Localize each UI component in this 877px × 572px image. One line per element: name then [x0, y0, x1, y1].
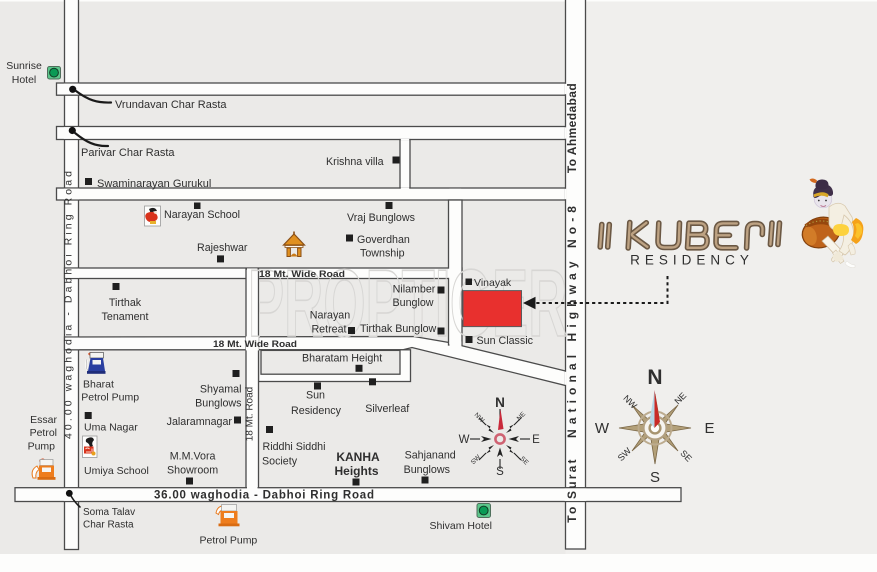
- svg-text:Showroom: Showroom: [167, 465, 218, 477]
- svg-text:Petrol Pump: Petrol Pump: [81, 392, 139, 404]
- svg-text:Shivam Hotel: Shivam Hotel: [430, 520, 492, 532]
- svg-text:Jalaramnagar: Jalaramnagar: [167, 416, 233, 428]
- svg-text:Bharatam Height: Bharatam Height: [302, 353, 382, 365]
- svg-text:36.00 waghodia - Dabhoi Ri: 36.00 waghodia - Dabhoi Ring Road: [154, 490, 374, 502]
- svg-text:18 Mt. Wide Road: 18 Mt. Wide Road: [213, 339, 297, 350]
- svg-text:Char Rasta: Char Rasta: [83, 520, 134, 531]
- svg-text:Pump: Pump: [28, 441, 56, 453]
- svg-text:Narayan: Narayan: [310, 310, 350, 322]
- svg-text:Tirthak: Tirthak: [109, 297, 142, 309]
- svg-text:N: N: [495, 395, 505, 410]
- svg-text:Sunrise: Sunrise: [6, 60, 42, 72]
- svg-text:Residency: Residency: [291, 405, 342, 417]
- svg-text:KANHA: KANHA: [336, 450, 380, 464]
- svg-text:Silverleaf: Silverleaf: [365, 403, 409, 415]
- svg-text:W: W: [595, 420, 610, 437]
- svg-text:Parivar Char Rasta: Parivar Char Rasta: [81, 147, 175, 159]
- svg-text:Vinayak: Vinayak: [474, 277, 512, 289]
- svg-text:Umiya School: Umiya School: [84, 465, 149, 477]
- svg-text:Soma Talav: Soma Talav: [83, 507, 135, 518]
- svg-text:Sun Classic: Sun Classic: [477, 335, 534, 347]
- svg-text:Retreat: Retreat: [311, 324, 346, 336]
- svg-text:E: E: [704, 420, 714, 437]
- svg-text:Vraj Bunglows: Vraj Bunglows: [347, 212, 415, 224]
- svg-text:W: W: [459, 434, 470, 446]
- svg-text:Shyamal: Shyamal: [200, 384, 242, 396]
- svg-text:To Surat: To Surat: [565, 457, 579, 522]
- svg-text:Bunglows: Bunglows: [195, 398, 241, 410]
- svg-text:Swaminarayan Gurukul: Swaminarayan Gurukul: [97, 178, 211, 190]
- svg-text:Uma Nagar: Uma Nagar: [84, 422, 138, 434]
- svg-text:18 Mt. Wide Road: 18 Mt. Wide Road: [259, 269, 345, 280]
- svg-text:RESIDENCY: RESIDENCY: [630, 253, 754, 268]
- svg-text:S: S: [496, 466, 504, 478]
- svg-text:E: E: [532, 434, 540, 446]
- svg-text:Nilamber: Nilamber: [393, 284, 436, 296]
- svg-text:S: S: [650, 469, 660, 486]
- svg-text:N: N: [647, 366, 662, 389]
- svg-text:Petrol: Petrol: [30, 427, 57, 439]
- svg-text:Essar: Essar: [30, 414, 57, 426]
- svg-text:Narayan School: Narayan School: [164, 209, 240, 221]
- svg-text:Riddhi Siddhi: Riddhi Siddhi: [263, 441, 326, 453]
- svg-text:Bunglow: Bunglow: [393, 297, 434, 309]
- svg-text:Petrol Pump: Petrol Pump: [200, 535, 258, 547]
- svg-text:To Ahmedabad: To Ahmedabad: [565, 83, 579, 173]
- svg-text:Goverdhan: Goverdhan: [357, 234, 410, 246]
- svg-text:Hotel: Hotel: [12, 74, 37, 86]
- svg-text:Bharat: Bharat: [83, 379, 114, 391]
- svg-text:Sun: Sun: [306, 390, 325, 402]
- svg-text:Heights: Heights: [334, 464, 378, 478]
- svg-text:M.M.Vora: M.M.Vora: [170, 451, 216, 463]
- svg-text:Tenament: Tenament: [102, 311, 149, 323]
- svg-text:18 Mt. Road: 18 Mt. Road: [244, 387, 255, 441]
- svg-text:Tirthak Bunglow: Tirthak Bunglow: [360, 323, 437, 335]
- svg-text:Vrundavan Char Rasta: Vrundavan Char Rasta: [115, 99, 227, 111]
- svg-text:Society: Society: [262, 456, 298, 468]
- svg-text:Bunglows: Bunglows: [404, 464, 450, 476]
- svg-text:Sahjanand: Sahjanand: [405, 450, 456, 462]
- svg-text:Township: Township: [360, 248, 405, 260]
- svg-text:Krishna villa: Krishna villa: [326, 156, 384, 168]
- svg-text:Rajeshwar: Rajeshwar: [197, 242, 248, 254]
